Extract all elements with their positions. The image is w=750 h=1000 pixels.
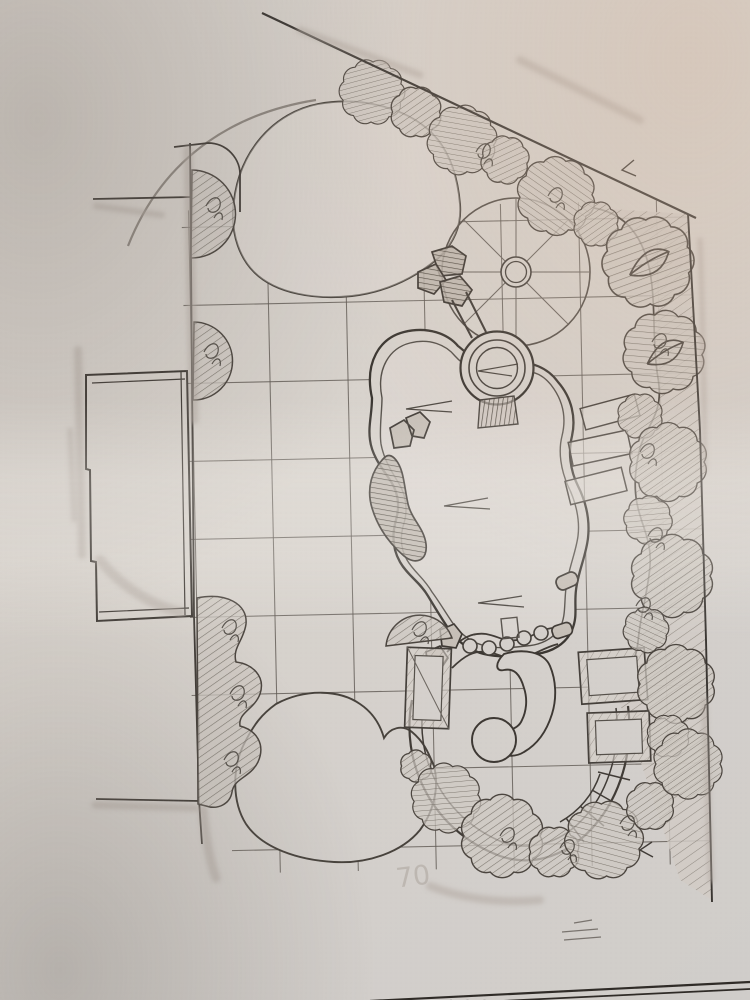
landscape-plan-photo: 70 ZZZDOATESSSM bbox=[0, 0, 750, 1000]
photo-lighting bbox=[0, 0, 750, 1000]
